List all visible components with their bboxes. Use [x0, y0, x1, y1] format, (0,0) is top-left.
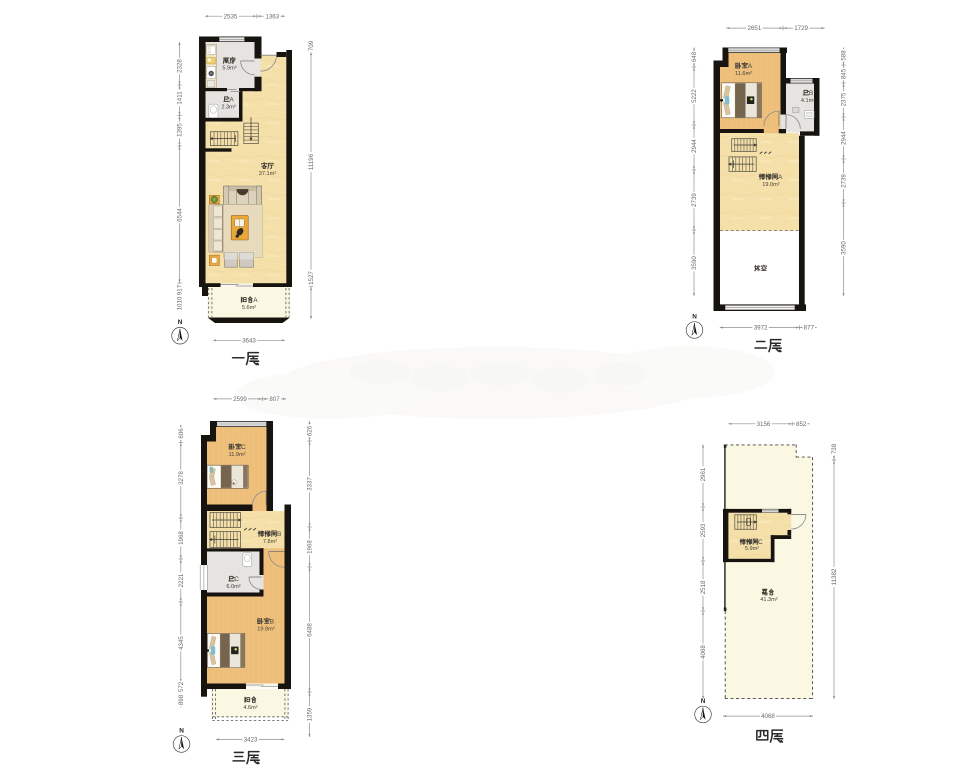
svg-text:917: 917: [177, 284, 184, 295]
svg-text:4068: 4068: [700, 645, 707, 659]
svg-text:3972: 3972: [754, 325, 768, 332]
svg-text:2651: 2651: [748, 25, 762, 32]
svg-text:37.1m²: 37.1m²: [259, 171, 277, 177]
svg-text:5.9m²: 5.9m²: [222, 66, 236, 72]
svg-text:626: 626: [307, 425, 314, 436]
svg-text:6.0m²: 6.0m²: [226, 584, 240, 590]
svg-text:A: A: [229, 96, 234, 103]
svg-text:C: C: [758, 539, 763, 546]
svg-text:2375: 2375: [841, 92, 848, 106]
svg-text:N: N: [701, 698, 706, 705]
svg-text:2944: 2944: [841, 131, 848, 145]
svg-text:7.8m²: 7.8m²: [263, 539, 277, 545]
svg-text:3590: 3590: [691, 256, 698, 270]
svg-text:4.1m²: 4.1m²: [801, 98, 815, 104]
svg-text:2535: 2535: [224, 13, 238, 20]
svg-text:2593: 2593: [700, 523, 707, 537]
svg-text:11.9m²: 11.9m²: [229, 452, 246, 458]
svg-text:A: A: [748, 63, 753, 70]
svg-text:N: N: [178, 319, 183, 326]
svg-text:1010: 1010: [177, 296, 184, 310]
svg-text:2221: 2221: [178, 573, 185, 587]
svg-text:19.9m²: 19.9m²: [257, 626, 275, 632]
svg-text:3156: 3156: [757, 421, 771, 428]
svg-text:2944: 2944: [691, 139, 698, 153]
svg-text:C: C: [234, 576, 239, 583]
svg-text:898: 898: [178, 694, 185, 705]
svg-text:807: 807: [269, 396, 280, 403]
svg-text:6488: 6488: [307, 623, 314, 637]
svg-text:2599: 2599: [233, 396, 247, 403]
svg-text:6544: 6544: [177, 208, 184, 222]
svg-text:5.6m²: 5.6m²: [242, 305, 256, 311]
svg-text:2518: 2518: [700, 580, 707, 594]
svg-text:3590: 3590: [841, 241, 848, 255]
svg-text:B: B: [270, 618, 274, 625]
svg-text:3643: 3643: [242, 337, 256, 344]
svg-text:2961: 2961: [700, 467, 707, 481]
svg-text:19.0m²: 19.0m²: [762, 182, 780, 188]
svg-text:4345: 4345: [178, 636, 185, 650]
svg-text:2328: 2328: [177, 59, 184, 73]
svg-text:11.6m²: 11.6m²: [735, 71, 752, 77]
svg-text:845: 845: [841, 68, 848, 79]
svg-text:709: 709: [308, 40, 315, 51]
svg-text:648: 648: [691, 51, 698, 62]
svg-text:606: 606: [178, 428, 185, 439]
svg-text:1411: 1411: [177, 91, 184, 105]
svg-text:738: 738: [831, 443, 838, 454]
svg-text:3278: 3278: [178, 471, 185, 485]
svg-text:11382: 11382: [831, 568, 838, 585]
svg-text:5.9m²: 5.9m²: [745, 546, 759, 552]
svg-text:A: A: [778, 174, 783, 181]
svg-text:1729: 1729: [794, 25, 808, 32]
svg-text:572: 572: [178, 681, 185, 692]
svg-text:N: N: [692, 314, 697, 321]
svg-text:1359: 1359: [307, 707, 314, 721]
svg-text:2739: 2739: [691, 193, 698, 207]
svg-text:1968: 1968: [178, 531, 185, 545]
svg-text:C: C: [241, 444, 246, 451]
svg-text:2739: 2739: [841, 174, 848, 188]
svg-text:N: N: [179, 728, 184, 735]
svg-text:B: B: [277, 531, 281, 538]
svg-text:5222: 5222: [691, 89, 698, 103]
svg-text:588: 588: [841, 50, 848, 61]
svg-text:1527: 1527: [308, 271, 315, 285]
svg-text:852: 852: [796, 421, 807, 428]
svg-text:3337: 3337: [307, 477, 314, 491]
svg-text:41.3m²: 41.3m²: [760, 597, 778, 603]
svg-text:877: 877: [804, 325, 815, 332]
svg-text:B: B: [809, 90, 813, 97]
svg-text:11196: 11196: [308, 153, 315, 170]
svg-text:4068: 4068: [761, 713, 775, 720]
svg-text:1363: 1363: [265, 13, 279, 20]
svg-text:2.3m²: 2.3m²: [221, 104, 235, 110]
svg-text:1395: 1395: [177, 123, 184, 137]
svg-text:4.6m²: 4.6m²: [243, 705, 257, 711]
svg-text:1968: 1968: [307, 540, 314, 554]
svg-text:3423: 3423: [244, 737, 258, 744]
svg-text:A: A: [253, 297, 258, 304]
